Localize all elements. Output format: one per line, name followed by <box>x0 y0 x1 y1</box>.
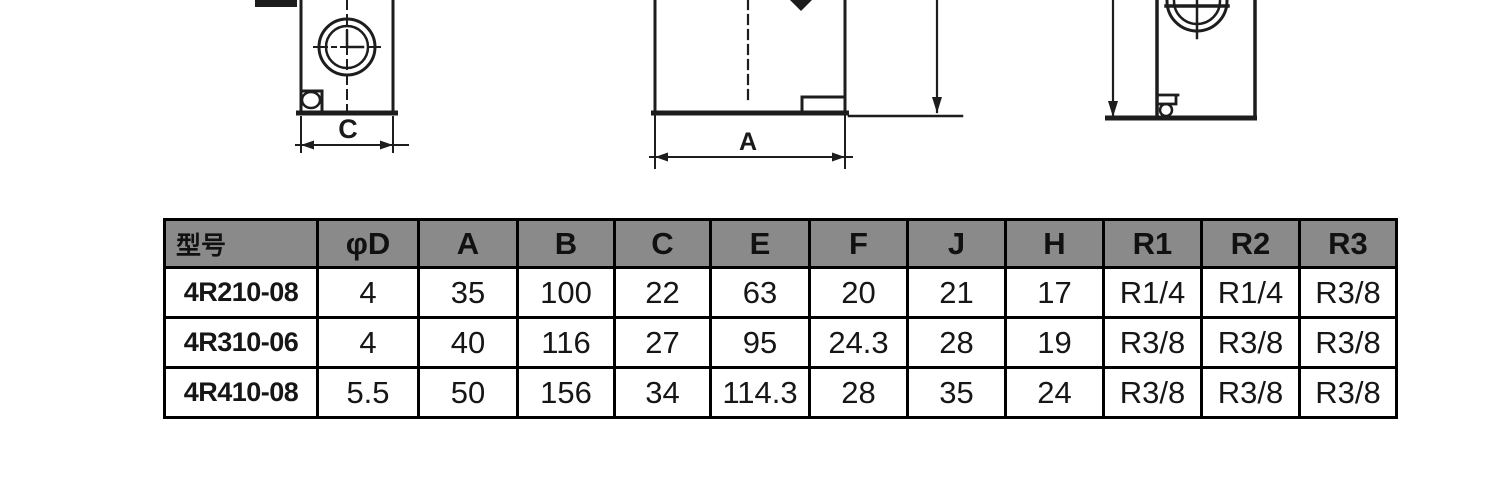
value-cell: R3/8 <box>1202 318 1300 368</box>
height-dim-arrow <box>932 97 942 113</box>
col-header-model: 型号 <box>165 220 318 268</box>
cropped-label-fragment <box>255 0 297 7</box>
middle-view-drawing <box>640 0 970 175</box>
value-cell: 50 <box>419 368 518 418</box>
col-header-f: F <box>810 220 908 268</box>
header-row: 型号 φD A B C E F J H R1 R2 R3 <box>165 220 1397 268</box>
value-cell: R1/4 <box>1104 268 1202 318</box>
value-cell: 95 <box>711 318 810 368</box>
dim-c-arrow-right <box>380 141 393 150</box>
value-cell: 5.5 <box>318 368 419 418</box>
value-cell: R3/8 <box>1202 368 1300 418</box>
table-row: 4R410-08 5.5 50 156 34 114.3 28 35 24 R3… <box>165 368 1397 418</box>
table-row: 4R310-06 4 40 116 27 95 24.3 28 19 R3/8 … <box>165 318 1397 368</box>
value-cell: 63 <box>711 268 810 318</box>
value-cell: 35 <box>908 368 1006 418</box>
value-cell: 35 <box>419 268 518 318</box>
col-header-c: C <box>615 220 711 268</box>
port-center-mark <box>347 31 363 47</box>
col-header-a: A <box>419 220 518 268</box>
col-header-e: E <box>711 220 810 268</box>
base-notch-outline <box>802 97 845 111</box>
dim-a-arrow-right <box>832 153 845 162</box>
col-header-h: H <box>1006 220 1104 268</box>
value-cell: 17 <box>1006 268 1104 318</box>
value-cell: 28 <box>908 318 1006 368</box>
model-name: 4R310-06 <box>165 318 318 368</box>
dim-label-c: C <box>333 116 363 143</box>
flow-arrow-fragment <box>790 0 812 11</box>
product-spec-image: C A <box>0 0 1500 482</box>
col-header-r2: R2 <box>1202 220 1300 268</box>
table-row: 4R210-08 4 35 100 22 63 20 21 17 R1/4 R1… <box>165 268 1397 318</box>
height-dim-arrow <box>1108 101 1118 117</box>
col-header-b: B <box>518 220 615 268</box>
value-cell: R3/8 <box>1104 318 1202 368</box>
value-cell: 114.3 <box>711 368 810 418</box>
value-cell: 116 <box>518 318 615 368</box>
value-cell: R1/4 <box>1202 268 1300 318</box>
right-view-drawing <box>1095 0 1275 130</box>
value-cell: R3/8 <box>1300 268 1397 318</box>
model-name: 4R210-08 <box>165 268 318 318</box>
side-port-outline <box>1157 95 1178 104</box>
col-header-r1: R1 <box>1104 220 1202 268</box>
value-cell: 156 <box>518 368 615 418</box>
value-cell: 34 <box>615 368 711 418</box>
value-cell: R3/8 <box>1104 368 1202 418</box>
body-bottom-edge <box>651 111 849 116</box>
col-header-j: J <box>908 220 1006 268</box>
dim-c-arrow-left <box>301 141 314 150</box>
body-bottom-edge <box>1105 116 1257 121</box>
value-cell: 4 <box>318 318 419 368</box>
value-cell: 21 <box>908 268 1006 318</box>
value-cell: 40 <box>419 318 518 368</box>
corner-notch-arc <box>302 92 320 108</box>
value-cell: 28 <box>810 368 908 418</box>
dim-label-a: A <box>733 130 763 155</box>
model-name: 4R410-08 <box>165 368 318 418</box>
dim-a-arrow-left <box>655 153 668 162</box>
value-cell: R3/8 <box>1300 318 1397 368</box>
value-cell: 24.3 <box>810 318 908 368</box>
spec-table: 型号 φD A B C E F J H R1 R2 R3 4R210-08 4 … <box>163 218 1398 419</box>
col-header-phid: φD <box>318 220 419 268</box>
value-cell: 20 <box>810 268 908 318</box>
value-cell: 22 <box>615 268 711 318</box>
value-cell: 27 <box>615 318 711 368</box>
value-cell: 19 <box>1006 318 1104 368</box>
value-cell: 4 <box>318 268 419 318</box>
value-cell: 24 <box>1006 368 1104 418</box>
value-cell: 100 <box>518 268 615 318</box>
col-header-r3: R3 <box>1300 220 1397 268</box>
value-cell: R3/8 <box>1300 368 1397 418</box>
side-port-circle <box>1160 104 1172 116</box>
